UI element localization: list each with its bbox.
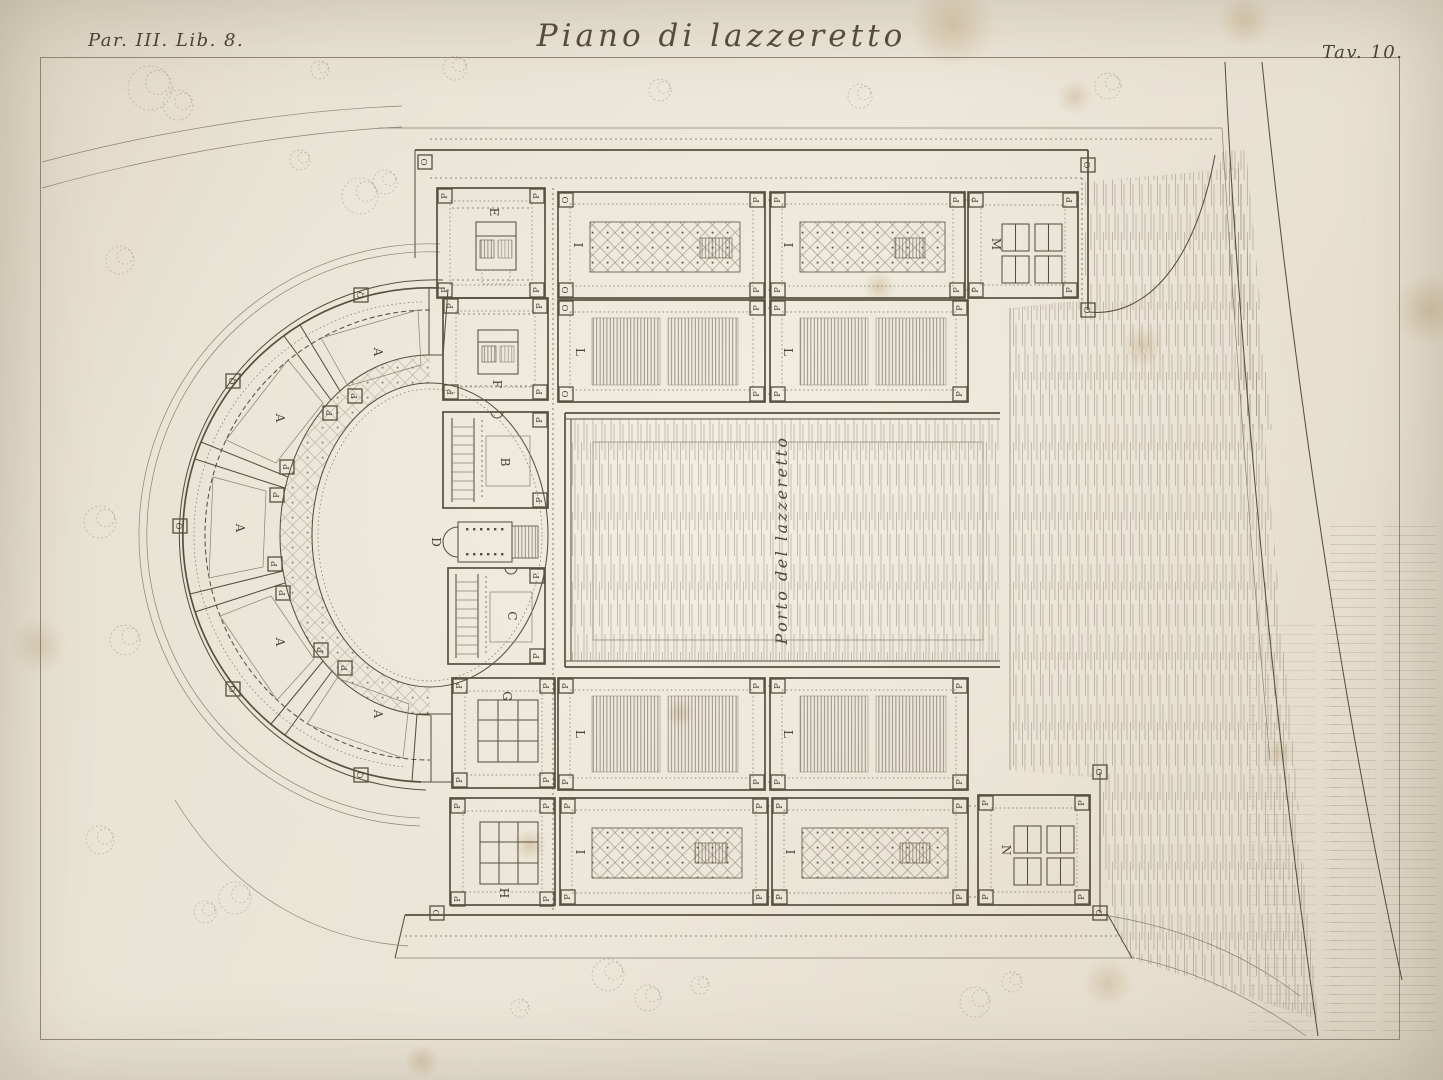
marker-letter-p: P xyxy=(535,303,545,309)
marker-p: P xyxy=(953,387,967,401)
marker-letter-p: P xyxy=(446,303,456,309)
marker-letter-p: P xyxy=(272,492,282,498)
marker-o: O xyxy=(559,387,573,401)
marker-letter-p: P xyxy=(755,803,765,809)
marker-p: P xyxy=(750,193,764,207)
marker-letter-p: P xyxy=(455,683,465,689)
marker-letter-o: O xyxy=(561,286,571,293)
marker-p: P xyxy=(268,557,282,571)
marker-letter-p: P xyxy=(270,561,280,567)
marker-o: O xyxy=(559,301,573,315)
room-label-l: L xyxy=(573,730,587,738)
marker-letter-p: P xyxy=(542,683,552,689)
tree-icon xyxy=(84,506,116,538)
marker-p: P xyxy=(771,283,785,297)
marker-p: P xyxy=(753,890,767,904)
room-label-e: E xyxy=(487,208,501,217)
marker-letter-p: P xyxy=(752,391,762,397)
tree-icon xyxy=(290,150,310,170)
room-label-b: B xyxy=(498,458,512,467)
marker-letter-p: P xyxy=(773,197,783,203)
tree-icon xyxy=(106,246,134,274)
marker-letter-p: P xyxy=(561,683,571,689)
marker-p: P xyxy=(979,890,993,904)
room-label-l: L xyxy=(573,348,587,356)
marker-letter-p: P xyxy=(563,894,573,900)
marker-p: P xyxy=(559,679,573,693)
marker-letter-p: P xyxy=(325,410,335,416)
marker-letter-p: P xyxy=(752,287,762,293)
tree-icon xyxy=(635,985,661,1011)
marker-letter-p: P xyxy=(773,779,783,785)
room-label-g: G xyxy=(500,691,514,701)
room-label-i: I xyxy=(781,243,795,248)
tree-icon xyxy=(848,84,872,108)
marker-letter-p: P xyxy=(971,287,981,293)
tree-icon xyxy=(194,901,216,923)
marker-letter-p: P xyxy=(535,389,545,395)
marker-letter-p: P xyxy=(561,779,571,785)
marker-letter-o: O xyxy=(561,304,571,311)
pavilion-N xyxy=(978,795,1090,905)
marker-letter-p: P xyxy=(952,197,962,203)
tree-icon xyxy=(691,976,709,994)
ward-L-upper-left xyxy=(558,300,765,402)
marker-letter-p: P xyxy=(773,287,783,293)
marker-p: P xyxy=(953,890,967,904)
marker-p: P xyxy=(953,775,967,789)
marker-p: P xyxy=(771,679,785,693)
marker-p: P xyxy=(533,299,547,313)
marker-letter-o: O xyxy=(1083,306,1093,313)
marker-letter-p: P xyxy=(532,573,542,579)
marker-p: P xyxy=(533,413,547,427)
marker-letter-p: P xyxy=(542,803,552,809)
marker-letter-p: P xyxy=(955,779,965,785)
marker-p: P xyxy=(950,283,964,297)
marker-letter-p: P xyxy=(773,305,783,311)
marker-letter-p: P xyxy=(773,391,783,397)
marker-p: P xyxy=(953,799,967,813)
marker-letter-q: Q xyxy=(228,685,238,692)
room-label-f: F xyxy=(490,380,504,388)
ward-I-bottom-left xyxy=(560,798,768,905)
marker-letter-p: P xyxy=(755,894,765,900)
pavilion-M xyxy=(968,192,1078,298)
marker-letter-p: P xyxy=(955,683,965,689)
room-label-h: H xyxy=(497,888,511,898)
room-label-a: A xyxy=(273,637,287,647)
marker-letter-p: P xyxy=(440,193,450,199)
marker-letter-o: O xyxy=(432,909,442,916)
marker-letter-p: P xyxy=(282,464,292,470)
tree-icon xyxy=(110,625,140,655)
lazaretto-plan-drawing: Porto del lazzeretto PPPPPPPPPPPPPPPPPPP… xyxy=(0,0,1443,1080)
marker-letter-p: P xyxy=(453,896,463,902)
marker-letter-o: O xyxy=(420,158,430,165)
tree-icon xyxy=(443,56,467,80)
marker-letter-p: P xyxy=(773,683,783,689)
marker-letter-p: P xyxy=(455,777,465,783)
marker-p: P xyxy=(950,193,964,207)
ward-L-upper-right xyxy=(770,300,968,402)
marker-p: P xyxy=(750,301,764,315)
engraved-plate: Par. III. Lib. 8. Piano di lazzeretto Ta… xyxy=(0,0,1443,1080)
horseshoe-wing xyxy=(139,244,548,826)
marker-letter-p: P xyxy=(752,683,762,689)
marker-letter-p: P xyxy=(971,197,981,203)
marker-p: P xyxy=(561,799,575,813)
marker-letter-p: P xyxy=(952,287,962,293)
marker-p: P xyxy=(771,387,785,401)
marker-letter-p: P xyxy=(532,193,542,199)
marker-letter-p: P xyxy=(955,391,965,397)
marker-p: P xyxy=(953,301,967,315)
marker-letter-p: P xyxy=(535,417,545,423)
marker-letter-p: P xyxy=(316,647,326,653)
marker-p: P xyxy=(530,283,544,297)
marker-letter-p: P xyxy=(981,800,991,806)
marker-letter-o: O xyxy=(1083,161,1093,168)
marker-letter-p: P xyxy=(955,803,965,809)
tree-icon xyxy=(128,66,172,110)
ward-I-bottom-right xyxy=(772,798,968,905)
room-label-c: C xyxy=(505,611,519,620)
marker-letter-o: O xyxy=(1095,909,1105,916)
marker-p: P xyxy=(451,892,465,906)
marker-p: P xyxy=(773,890,787,904)
port-label: Porto del lazzeretto xyxy=(772,435,791,645)
ward-L-lower-right xyxy=(770,678,968,790)
marker-p: P xyxy=(750,775,764,789)
tree-icon xyxy=(342,178,378,214)
marker-p: P xyxy=(753,799,767,813)
marker-letter-p: P xyxy=(955,305,965,311)
marker-p: P xyxy=(773,799,787,813)
marker-letter-p: P xyxy=(752,305,762,311)
tree-icon xyxy=(311,61,329,79)
room-label-i: I xyxy=(571,243,585,248)
tree-icon xyxy=(219,882,251,914)
marker-p: P xyxy=(750,283,764,297)
pavilion-E xyxy=(437,188,545,298)
room-label-a: A xyxy=(273,413,287,423)
marker-p: P xyxy=(1063,193,1077,207)
marker-letter-p: P xyxy=(775,894,785,900)
chapel-D xyxy=(443,522,538,562)
tree-icon xyxy=(373,170,397,194)
marker-p: P xyxy=(1075,796,1089,810)
marker-p: P xyxy=(530,569,544,583)
marker-p: P xyxy=(533,493,547,507)
room-label-n: N xyxy=(999,845,1013,856)
marker-letter-p: P xyxy=(1065,287,1075,293)
marker-p: P xyxy=(979,796,993,810)
marker-p: P xyxy=(953,679,967,693)
marker-letter-p: P xyxy=(535,497,545,503)
marker-letter-p: P xyxy=(532,653,542,659)
tree-icon xyxy=(163,90,193,120)
room-label-i: I xyxy=(783,850,797,855)
marker-letter-o: O xyxy=(561,196,571,203)
tree-icon xyxy=(1095,73,1121,99)
marker-letter-p: P xyxy=(1077,800,1087,806)
marker-p: P xyxy=(533,385,547,399)
marker-letter-o: O xyxy=(561,390,571,397)
marker-letter-p: P xyxy=(278,590,288,596)
marker-p: P xyxy=(559,775,573,789)
marker-letter-p: P xyxy=(955,894,965,900)
marker-letter-p: P xyxy=(453,803,463,809)
room-label-a: A xyxy=(233,523,247,533)
marker-o: O xyxy=(559,193,573,207)
marker-p: P xyxy=(750,387,764,401)
marker-letter-p: P xyxy=(440,287,450,293)
marker-p: P xyxy=(750,679,764,693)
marker-p: P xyxy=(540,892,554,906)
room-label-i: I xyxy=(573,850,587,855)
marker-letter-p: P xyxy=(542,896,552,902)
tree-icon xyxy=(86,826,114,854)
marker-p: P xyxy=(561,890,575,904)
marker-p: P xyxy=(771,301,785,315)
marker-o: O xyxy=(559,283,573,297)
marker-letter-q: Q xyxy=(356,771,366,778)
marker-p: P xyxy=(771,193,785,207)
marker-p: P xyxy=(771,775,785,789)
marker-p: P xyxy=(540,799,554,813)
marker-letter-q: Q xyxy=(175,522,185,529)
room-label-a: A xyxy=(371,347,385,357)
marker-letter-p: P xyxy=(1077,894,1087,900)
marker-letter-q: Q xyxy=(356,291,366,298)
marker-letter-p: P xyxy=(542,777,552,783)
marker-p: P xyxy=(1075,890,1089,904)
marker-p: P xyxy=(530,189,544,203)
marker-letter-p: P xyxy=(350,393,360,399)
marker-letter-p: P xyxy=(752,779,762,785)
ward-I-top-right xyxy=(770,192,965,298)
marker-p: P xyxy=(270,488,284,502)
room-label-l: L xyxy=(781,348,795,356)
ward-L-lower-left xyxy=(558,678,765,790)
marker-letter-q: Q xyxy=(228,377,238,384)
marker-letter-p: P xyxy=(1065,197,1075,203)
marker-o: O xyxy=(418,155,432,169)
tree-icon xyxy=(960,987,990,1017)
marker-letter-p: P xyxy=(340,665,350,671)
tree-icon xyxy=(511,999,529,1017)
marker-letter-p: P xyxy=(752,197,762,203)
room-label-l: L xyxy=(781,730,795,738)
marker-letter-p: P xyxy=(775,803,785,809)
marker-letter-p: P xyxy=(563,803,573,809)
marker-o: O xyxy=(430,906,444,920)
marker-letter-p: P xyxy=(532,287,542,293)
marker-p: P xyxy=(453,679,467,693)
tree-icon xyxy=(649,79,671,101)
marker-p: P xyxy=(453,773,467,787)
ward-I-top-left xyxy=(558,192,765,298)
tree-icon xyxy=(1002,972,1022,992)
marker-letter-o: O xyxy=(1095,768,1105,775)
room-label-a: A xyxy=(371,709,385,719)
marker-letter-p: P xyxy=(981,894,991,900)
marker-letter-p: P xyxy=(446,389,456,395)
marker-p: P xyxy=(530,649,544,663)
room-label-d: D xyxy=(429,537,443,547)
room-label-m: M xyxy=(989,238,1003,250)
tree-icon xyxy=(592,959,624,991)
